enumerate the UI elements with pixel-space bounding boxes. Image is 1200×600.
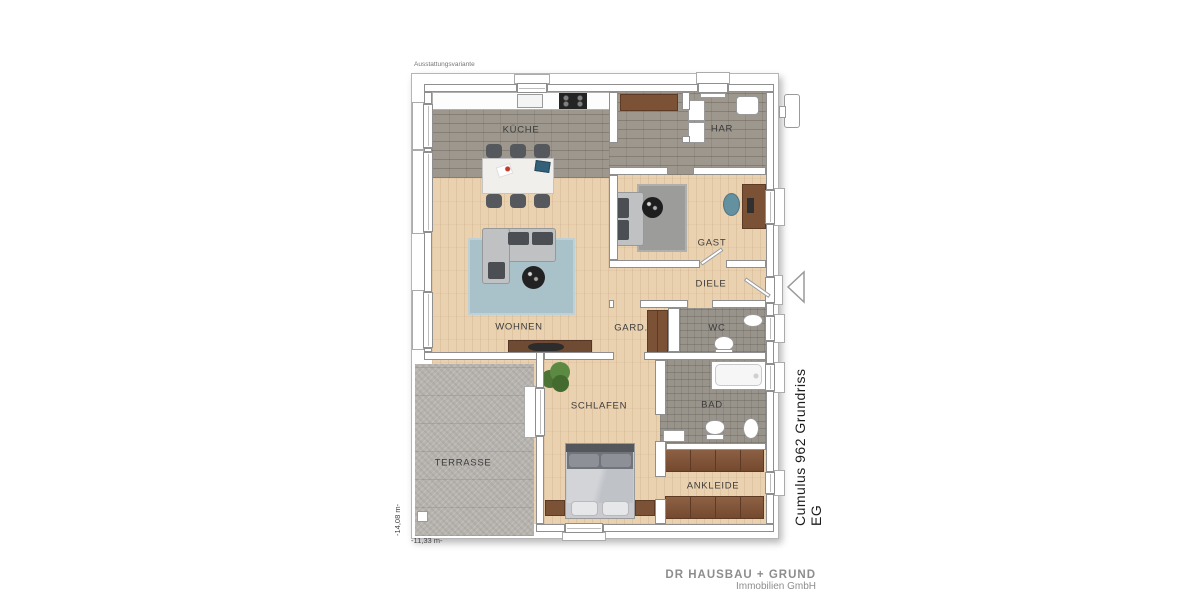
wall bbox=[766, 224, 774, 277]
wall bbox=[424, 232, 432, 292]
coffee-table bbox=[522, 266, 545, 289]
chimney-outline-tab bbox=[779, 106, 786, 118]
dining-chair bbox=[534, 144, 550, 158]
wall bbox=[693, 167, 766, 175]
room-label-gard: GARD. bbox=[614, 323, 648, 334]
wall bbox=[682, 92, 690, 110]
dining-chair bbox=[510, 194, 526, 208]
wc-washbasin bbox=[743, 314, 763, 327]
terrace-drain bbox=[417, 511, 428, 522]
wall bbox=[547, 84, 698, 92]
door-step bbox=[774, 275, 783, 305]
window-sill bbox=[774, 362, 785, 393]
wall bbox=[536, 436, 544, 524]
room-label-diele: DIELE bbox=[696, 279, 727, 290]
room-label-wc: WC bbox=[708, 323, 725, 334]
bedside-table bbox=[635, 500, 655, 516]
company-subtitle: Immobilien GmbH bbox=[616, 581, 816, 592]
desk-chair bbox=[723, 193, 740, 216]
window bbox=[565, 523, 603, 533]
wall bbox=[712, 300, 766, 308]
wall bbox=[609, 92, 618, 143]
plan-title: Cumulus 962 Grundriss EG bbox=[792, 356, 824, 526]
window bbox=[535, 388, 545, 436]
room-label-terrasse: TERRASSE bbox=[435, 458, 492, 469]
bedside-table bbox=[545, 500, 565, 516]
bathtub-basin bbox=[715, 364, 762, 386]
plant-leaf bbox=[552, 375, 569, 392]
chimney-outline bbox=[784, 94, 800, 128]
desk bbox=[742, 184, 766, 229]
window-sill bbox=[774, 470, 785, 496]
guest-room-rug bbox=[637, 184, 687, 252]
har-door-leaf bbox=[700, 93, 726, 98]
variant-label: Ausstattungsvariante bbox=[414, 61, 475, 68]
bath-bidet bbox=[743, 418, 759, 439]
wall bbox=[424, 352, 544, 360]
dining-chair bbox=[486, 194, 502, 208]
window-sill bbox=[774, 314, 785, 343]
plant bbox=[541, 362, 571, 394]
wall bbox=[609, 300, 614, 308]
window bbox=[765, 472, 775, 494]
room-label-gast: GAST bbox=[698, 238, 727, 249]
entry-door-opening bbox=[765, 277, 775, 303]
ankleide-wardrobe-top bbox=[665, 448, 764, 472]
wall bbox=[766, 92, 774, 190]
laptop bbox=[534, 160, 550, 173]
room-label-bad: BAD bbox=[701, 400, 723, 411]
bed-pillow bbox=[569, 454, 599, 467]
wall bbox=[766, 303, 774, 316]
wall bbox=[609, 260, 700, 268]
room-label-schlafen: SCHLAFEN bbox=[571, 401, 627, 412]
dining-chair bbox=[534, 194, 550, 208]
wall bbox=[668, 308, 680, 352]
shower-tray bbox=[663, 430, 685, 442]
wall bbox=[640, 300, 688, 308]
dimension-width: -11,33 m- bbox=[411, 536, 443, 545]
window-sill bbox=[562, 532, 606, 541]
wall bbox=[766, 494, 774, 524]
har-appliance bbox=[736, 96, 759, 115]
wall bbox=[766, 391, 774, 472]
bed-folded-blanket bbox=[602, 501, 629, 516]
bed-duvet bbox=[567, 469, 633, 503]
har-door-opening bbox=[698, 83, 728, 93]
wall bbox=[655, 441, 666, 477]
window bbox=[765, 190, 775, 224]
sofa-cushion bbox=[488, 262, 505, 279]
hall-sideboard bbox=[620, 94, 678, 111]
room-label-wohnen: WOHNEN bbox=[495, 322, 542, 333]
washing-machine bbox=[688, 100, 705, 121]
window bbox=[765, 364, 775, 391]
window bbox=[423, 292, 433, 348]
wall bbox=[682, 136, 690, 143]
gard-wardrobe bbox=[647, 310, 668, 354]
company-name: DR HAUSBAU + GRUND bbox=[616, 569, 816, 581]
wall bbox=[666, 443, 766, 450]
wall bbox=[424, 84, 517, 92]
window bbox=[517, 83, 547, 93]
bed-folded-blanket bbox=[571, 501, 598, 516]
floor-plan-page: Ausstattungsvariante bbox=[0, 0, 1200, 600]
room-label-ankleide: ANKLEIDE bbox=[687, 481, 740, 492]
sofa-cushion bbox=[532, 232, 553, 245]
entrance-arrow-icon bbox=[786, 270, 806, 304]
window bbox=[423, 152, 433, 232]
wall bbox=[766, 341, 774, 364]
guest-side-table bbox=[642, 197, 663, 218]
company-credit: DR HAUSBAU + GRUND Immobilien GmbH bbox=[616, 569, 816, 592]
wall bbox=[609, 175, 618, 260]
wall bbox=[536, 352, 544, 388]
room-label-kueche: KÜCHE bbox=[503, 125, 540, 136]
room-label-har: HAR bbox=[711, 124, 733, 135]
window bbox=[765, 316, 775, 341]
sofa-cushion bbox=[508, 232, 529, 245]
window bbox=[423, 104, 433, 148]
wall bbox=[536, 524, 565, 532]
wall bbox=[424, 92, 432, 104]
dimension-height: -14,08 m- bbox=[393, 488, 402, 536]
cooktop bbox=[559, 93, 587, 109]
window-sill bbox=[774, 188, 785, 226]
kitchen-sink bbox=[517, 94, 543, 108]
wall bbox=[728, 84, 774, 92]
dryer bbox=[688, 122, 705, 143]
wall bbox=[726, 260, 766, 268]
bed-pillow bbox=[601, 454, 631, 467]
bed bbox=[565, 443, 635, 519]
dining-chair bbox=[510, 144, 526, 158]
desk-monitor bbox=[747, 198, 754, 213]
terrace-paving bbox=[415, 364, 534, 536]
wall bbox=[603, 524, 774, 532]
dining-chair bbox=[486, 144, 502, 158]
sideboard-decor bbox=[528, 343, 564, 351]
wall bbox=[544, 352, 614, 360]
bed-headboard bbox=[566, 444, 634, 452]
wall bbox=[609, 167, 668, 175]
wall bbox=[644, 352, 766, 360]
bath-toilet-bowl bbox=[705, 420, 725, 435]
ankleide-wardrobe-bottom bbox=[665, 496, 764, 519]
wall bbox=[655, 360, 666, 415]
bath-toilet-tank bbox=[706, 434, 724, 440]
wall bbox=[655, 499, 666, 524]
